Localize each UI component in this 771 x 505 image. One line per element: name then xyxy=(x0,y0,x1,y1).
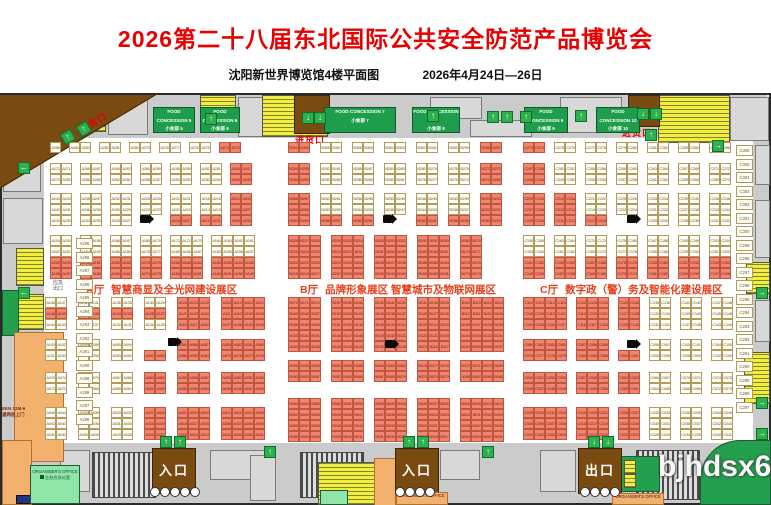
booth-cell: B232 xyxy=(480,204,491,215)
booth-cell: C117 xyxy=(587,319,598,330)
booth-cell: A112 xyxy=(254,297,265,308)
booth-cell: C100 xyxy=(680,339,691,350)
fc-cn: 小食部 8 xyxy=(413,125,459,133)
booth-cell: C081 xyxy=(534,339,545,350)
booth-cell: A292 xyxy=(76,333,93,344)
booth-cell: C241 xyxy=(709,215,720,226)
booth-cell: C096 xyxy=(649,339,660,350)
booth-cell: B163 xyxy=(288,330,299,341)
booth-cell: A201 xyxy=(61,246,72,257)
booth-cell: C148 xyxy=(722,297,733,308)
booth-cell: A271 xyxy=(61,163,72,174)
booth-cell: C047 xyxy=(534,383,545,394)
booth-cell: C188 xyxy=(658,235,669,246)
booth-cell: B273 xyxy=(459,174,470,185)
booth-cell: B055 xyxy=(288,431,299,442)
booth-cell: C162 xyxy=(565,246,576,257)
booth-cell: A073 xyxy=(45,383,56,394)
booth-cell: B260 xyxy=(320,204,331,215)
booth-cell: C190 xyxy=(689,268,700,279)
booth-cell: C257 xyxy=(616,174,627,185)
booth-cell: A055 xyxy=(188,383,199,394)
booth-cell: B296 xyxy=(288,163,299,174)
booth-cell: B119 xyxy=(417,341,428,352)
booth-cell: C128 xyxy=(629,308,640,319)
booth-cell: B056 xyxy=(310,420,321,431)
camera-icon xyxy=(627,214,641,224)
booth-cell: C113 xyxy=(534,297,545,308)
booth-cell: A268 xyxy=(80,163,91,174)
booth-cell: A130 xyxy=(144,297,155,308)
booth-cell: B238 xyxy=(448,204,459,215)
booth-cell: B013 xyxy=(493,398,504,409)
booth-cell: C305 xyxy=(736,159,753,170)
booth-cell: C020 xyxy=(587,407,598,418)
booth-cell: C255 xyxy=(585,163,596,174)
booth-cell: B061 xyxy=(288,409,299,420)
booth-cell: A263 xyxy=(121,163,132,174)
booth-cell: B090 xyxy=(331,360,342,371)
booth-cell: C214 xyxy=(565,204,576,215)
booth-cell: A023 xyxy=(144,429,155,440)
booth-cell: B264 xyxy=(288,215,299,226)
booth-cell: C022 xyxy=(618,429,629,440)
booth-cell: B003 xyxy=(471,431,482,442)
booth-cell: A058 xyxy=(188,372,199,383)
booth-cell: C060 xyxy=(618,383,629,394)
booth-cell: A012 xyxy=(221,407,232,418)
booth-cell: A183 xyxy=(121,257,132,268)
booth-cell: B257 xyxy=(331,215,342,226)
booth-cell: B094 xyxy=(310,360,321,371)
booth-cell: A028 xyxy=(122,429,133,440)
booth-cell: C069 xyxy=(691,383,702,394)
booth-cell: B042 xyxy=(342,431,353,442)
booth-cell: A217 xyxy=(181,215,192,226)
booth-cell: A065 xyxy=(111,383,122,394)
booth-cell: C124 xyxy=(598,297,609,308)
booth-cell: B057 xyxy=(299,420,310,431)
booth-cell: A078 xyxy=(232,350,243,361)
booth-cell: B103 xyxy=(471,330,482,341)
booth-cell: C013 xyxy=(576,429,587,440)
booth-cell: C239 xyxy=(678,193,689,204)
booth-cell: B018 xyxy=(428,431,439,442)
booth-cell: A021 xyxy=(177,407,188,418)
booth-cell: B023 xyxy=(439,409,450,420)
booth-cell: B184 xyxy=(439,257,450,268)
booth-cell: A085 xyxy=(188,350,199,361)
booth-cell: B267 xyxy=(299,193,310,204)
booth-cell: A238 xyxy=(80,193,91,204)
booth-cell: A259 xyxy=(151,163,162,174)
booth-cell: A049 xyxy=(221,383,232,394)
booth-cell: A056 xyxy=(177,383,188,394)
direction-arrow-icon: ← xyxy=(18,287,30,299)
watermark: bjhdsx6.c xyxy=(658,450,771,484)
booth-cell: B198 xyxy=(374,257,385,268)
booth-cell: A226 xyxy=(140,193,151,204)
table-circle xyxy=(150,487,160,497)
booth-cell: A052 xyxy=(232,372,243,383)
booth-cell: A143 xyxy=(56,319,67,330)
booth-cell: C206 xyxy=(534,215,545,226)
booth-cell: A146 xyxy=(45,308,56,319)
booth-cell: C155 xyxy=(523,235,534,246)
booth-cell: B272 xyxy=(480,163,491,174)
booth-cell: A053 xyxy=(221,372,232,383)
booth-cell: B285 xyxy=(363,174,374,185)
booth-cell: B217 xyxy=(310,268,321,279)
booth-cell: B114 xyxy=(482,297,493,308)
booth-cell: C052 xyxy=(545,372,556,383)
booth-cell: B171 xyxy=(299,297,310,308)
booth-cell: C219 xyxy=(585,204,596,215)
booth-cell: B266 xyxy=(288,204,299,215)
booth-cell: B027 xyxy=(428,398,439,409)
booth-cell: B300 xyxy=(448,142,459,153)
booth-cell: B194 xyxy=(385,268,396,279)
zone-name: 品牌形象展区 智慧城市及物联网展区 xyxy=(325,284,496,296)
booth-cell: C042 xyxy=(711,418,722,429)
booth-cell: C242 xyxy=(720,215,731,226)
booth-cell: A091 xyxy=(144,350,155,361)
booth-cell: A289 xyxy=(76,373,93,384)
zone-label-A厅: A厅智慧商显及全光网建设展区 xyxy=(86,282,237,297)
booth-cell: B298 xyxy=(480,142,491,153)
booth-cell: C107 xyxy=(556,319,567,330)
booth-cell: A003 xyxy=(232,429,243,440)
booth-cell: A215 xyxy=(211,193,222,204)
booth-cell: B043 xyxy=(331,431,342,442)
booth-cell: C165 xyxy=(585,268,596,279)
booth-cell: A044 xyxy=(56,407,67,418)
booth-cell: C073 xyxy=(722,383,733,394)
booth-cell: C272 xyxy=(720,163,731,174)
booth-cell: A120 xyxy=(188,308,199,319)
booth-cell: B234 xyxy=(480,193,491,204)
booth-cell: C111 xyxy=(556,308,567,319)
booth-cell: B295 xyxy=(299,163,310,174)
booth-cell: B109 xyxy=(493,308,504,319)
booth-cell: C168 xyxy=(596,257,607,268)
booth-cell: C109 xyxy=(534,308,545,319)
booth-cell: C205 xyxy=(523,215,534,226)
booth-cell: C252 xyxy=(565,163,576,174)
booth-cell: A200 xyxy=(50,257,61,268)
booth-cell: B251 xyxy=(363,215,374,226)
booth-cell: B148 xyxy=(331,330,342,341)
booth-cell: A290 xyxy=(76,360,93,371)
booth-cell: C147 xyxy=(711,297,722,308)
booth-cell: B229 xyxy=(491,215,502,226)
booth-cell: A024 xyxy=(155,418,166,429)
booth-cell: A155 xyxy=(222,257,233,268)
booth-cell: B166 xyxy=(288,319,299,330)
booth-cell: C019 xyxy=(576,407,587,418)
booth-cell: C070 xyxy=(680,372,691,383)
booth-cell: B050 xyxy=(353,398,364,409)
booth-cell: B246 xyxy=(416,193,427,204)
booth-cell: A211 xyxy=(211,215,222,226)
booth-cell: B227 xyxy=(299,235,310,246)
booth-cell: C030 xyxy=(649,418,660,429)
booth-cell: B281 xyxy=(395,174,406,185)
direction-arrow-icon: ↓ xyxy=(314,112,326,124)
booth-cell: B211 xyxy=(353,246,364,257)
booth-cell: B253 xyxy=(363,204,374,215)
booth-cell: C078 xyxy=(545,350,556,361)
booth-cell: C161 xyxy=(554,246,565,257)
booth-cell: A257 xyxy=(151,174,162,185)
booth-cell: C145 xyxy=(711,308,722,319)
booth-cell: A104 xyxy=(254,319,265,330)
booth-cell: B175 xyxy=(471,257,482,268)
booth-cell: A299 xyxy=(76,238,93,249)
booth-cell: C105 xyxy=(534,319,545,330)
booth-cell: C201 xyxy=(709,246,720,257)
booth-cell: C233 xyxy=(647,193,658,204)
booth-cell: C245 xyxy=(709,193,720,204)
booth-cell: B141 xyxy=(385,297,396,308)
booth-cell: C104 xyxy=(711,339,722,350)
booth-cell: A109 xyxy=(243,308,254,319)
booth-cell: C115 xyxy=(556,297,567,308)
booth-cell: B185 xyxy=(428,257,439,268)
booth-cell: A102 xyxy=(56,339,67,350)
booth-cell: C250 xyxy=(565,174,576,185)
booth-cell: B149 xyxy=(353,319,364,330)
booth-cell: B282 xyxy=(384,174,395,185)
booth-cell: C068 xyxy=(680,383,691,394)
direction-arrow-icon: ↑ xyxy=(264,446,276,458)
booth-cell: A294 xyxy=(76,306,93,317)
booth-cell: C153 xyxy=(523,246,534,257)
booth-cell: B244 xyxy=(416,204,427,215)
booth-cell: C249 xyxy=(554,174,565,185)
booth-cell: C251 xyxy=(554,163,565,174)
booth-cell: B077 xyxy=(428,360,439,371)
booth-cell: B279 xyxy=(427,163,438,174)
booth-cell: B076 xyxy=(439,360,450,371)
booth-cell: C292 xyxy=(736,334,753,345)
booth-cell: A162 xyxy=(233,235,244,246)
booth-cell: B009 xyxy=(493,409,504,420)
booth-cell: A128 xyxy=(144,308,155,319)
booth-cell: A272 xyxy=(50,163,61,174)
booth-cell: B203 xyxy=(385,235,396,246)
booth-cell: B153 xyxy=(342,308,353,319)
booth-cell: C049 xyxy=(556,383,567,394)
booth-cell: A296 xyxy=(76,279,93,290)
booth-cell: C106 xyxy=(545,319,556,330)
booth-cell: C164 xyxy=(565,235,576,246)
table-circle xyxy=(170,487,180,497)
booth-cell: C231 xyxy=(647,204,658,215)
booth-cell: B093 xyxy=(288,371,299,382)
booth-cell: C171 xyxy=(585,235,596,246)
booth-cell: C154 xyxy=(534,246,545,257)
booth-cell: C067 xyxy=(660,372,671,383)
booth-cell: B047 xyxy=(353,409,364,420)
booth-cell: B156 xyxy=(342,297,353,308)
booth-cell: C138 xyxy=(691,319,702,330)
booth-cell: C213 xyxy=(554,204,565,215)
booth-cell: A282 xyxy=(99,142,110,153)
table-circle xyxy=(610,487,620,497)
booth-cell: A241 xyxy=(61,204,72,215)
booth-cell: B236 xyxy=(448,215,459,226)
booth-cell: C023 xyxy=(629,429,640,440)
booth-cell: C167 xyxy=(585,257,596,268)
booth-cell: B269 xyxy=(491,174,502,185)
booth-cell: B242 xyxy=(416,215,427,226)
booth-cell: C273 xyxy=(523,142,534,153)
booth-cell: A181 xyxy=(121,268,132,279)
booth-cell: C097 xyxy=(660,339,671,350)
booth-cell: B053 xyxy=(310,431,321,442)
booth-cell: A163 xyxy=(170,268,181,279)
booth-cell: B005 xyxy=(493,420,504,431)
booth-cell: B063 xyxy=(299,398,310,409)
booth-cell: C112 xyxy=(523,297,534,308)
booth-cell: A153 xyxy=(244,257,255,268)
booth-cell: A198 xyxy=(50,268,61,279)
booth-cell: C058 xyxy=(587,372,598,383)
booth-cell: A048 xyxy=(232,383,243,394)
booth-cell: A110 xyxy=(232,308,243,319)
booth-cell: C051 xyxy=(534,372,545,383)
booth-cell: C103 xyxy=(722,350,733,361)
booth-cell: A254 xyxy=(170,174,181,185)
fc-cn: 小食部 7 xyxy=(325,117,395,126)
booth-cell: A230 xyxy=(110,204,121,215)
booth-cell: C195 xyxy=(678,235,689,246)
booth-cell: C144 xyxy=(722,319,733,330)
booth-cell: A161 xyxy=(192,268,203,279)
booth-cell: A062 xyxy=(155,372,166,383)
booth-cell: B302 xyxy=(416,142,427,153)
booth-cell: A019 xyxy=(199,407,210,418)
booth-cell: A126 xyxy=(144,319,155,330)
booth-cell: C276 xyxy=(565,142,576,153)
booth-cell: B157 xyxy=(331,297,342,308)
booth-cell: B073 xyxy=(439,371,450,382)
booth-cell: B147 xyxy=(342,330,353,341)
booth-cell: C108 xyxy=(523,308,534,319)
booth-cell: B075 xyxy=(417,371,428,382)
booth-cell: B040 xyxy=(374,398,385,409)
booth-cell: A233 xyxy=(91,215,102,226)
booth-cell: C274 xyxy=(534,142,545,153)
booth-cell: B197 xyxy=(385,257,396,268)
booth-cell: B072 xyxy=(460,360,471,371)
booth-cell: B284 xyxy=(384,163,395,174)
booth-cell: C212 xyxy=(565,215,576,226)
booth-cell: A088 xyxy=(188,339,199,350)
booth-cell: C005 xyxy=(523,418,534,429)
booth-cell: B048 xyxy=(342,409,353,420)
booth-cell: B106 xyxy=(482,319,493,330)
booth-cell: B104 xyxy=(460,330,471,341)
booth-cell: A229 xyxy=(121,204,132,215)
booth-cell: B039 xyxy=(385,398,396,409)
booth-cell: B303 xyxy=(395,142,406,153)
fc-cn: 小食部 10 xyxy=(597,125,639,133)
booth-cell: C262 xyxy=(658,174,669,185)
booth-cell: C203 xyxy=(709,235,720,246)
booth-cell: A046 xyxy=(254,383,265,394)
booth-cell: C230 xyxy=(658,215,669,226)
booth-cell: A209 xyxy=(241,193,252,204)
booth-cell: C220 xyxy=(596,204,607,215)
booth-cell: A031 xyxy=(111,418,122,429)
booth-cell: A150 xyxy=(233,268,244,279)
booth-cell: A172 xyxy=(170,235,181,246)
booth-cell: C037 xyxy=(691,418,702,429)
booth-cell: C176 xyxy=(627,257,638,268)
booth-cell: C248 xyxy=(534,163,545,174)
booth-cell: A063 xyxy=(144,372,155,383)
booth-cell: A067 xyxy=(111,372,122,383)
booth-cell: B115 xyxy=(471,297,482,308)
booth-cell: C235 xyxy=(678,215,689,226)
booth-cell: B288 xyxy=(352,163,363,174)
booth-cell: C009 xyxy=(523,407,534,418)
booth-cell: C071 xyxy=(691,372,702,383)
booth-cell: B021 xyxy=(428,420,439,431)
booth-cell: A197 xyxy=(61,268,72,279)
booth-cell: A250 xyxy=(200,174,211,185)
booth-cell: B222 xyxy=(288,257,299,268)
booth-cell: C048 xyxy=(545,383,556,394)
booth-cell: B172 xyxy=(288,297,299,308)
booth-cell: C244 xyxy=(720,204,731,215)
booth-cell: A225 xyxy=(151,193,162,204)
booth-cell: B102 xyxy=(482,330,493,341)
booth-cell: B151 xyxy=(331,319,342,330)
booth-cell: C303 xyxy=(736,186,753,197)
booth-cell: B241 xyxy=(427,215,438,226)
table-circle xyxy=(395,487,405,497)
direction-arrow-icon: ↑ xyxy=(575,110,587,122)
booth-cell: B146 xyxy=(353,330,364,341)
booth-cell: A187 xyxy=(121,235,132,246)
booth-cell: B036 xyxy=(385,409,396,420)
booth-cell: B308 xyxy=(320,142,331,153)
camera-icon xyxy=(383,214,397,224)
booth-cell: B309 xyxy=(299,142,310,153)
booth-cell: B112 xyxy=(460,308,471,319)
direction-arrow-icon: ↑ xyxy=(417,436,429,448)
booth-cell: A030 xyxy=(122,418,133,429)
booth-cell: C174 xyxy=(627,268,638,279)
booth-cell: B130 xyxy=(374,341,385,352)
direction-arrow-icon: ↓ xyxy=(588,436,600,448)
booth-cell: B082 xyxy=(396,360,407,371)
booth-cell: B123 xyxy=(439,319,450,330)
booth-cell: A025 xyxy=(144,418,155,429)
booth-cell: B209 xyxy=(342,257,353,268)
booth-cell: B178 xyxy=(460,246,471,257)
booth-cell: A100 xyxy=(56,350,67,361)
booth-cell: B173 xyxy=(471,268,482,279)
booth-cell: C196 xyxy=(689,235,700,246)
booth-cell: C105 xyxy=(722,339,733,350)
booth-cell: C260 xyxy=(627,163,638,174)
booth-cell: A286 xyxy=(76,414,93,425)
booth-cell: C017 xyxy=(587,418,598,429)
